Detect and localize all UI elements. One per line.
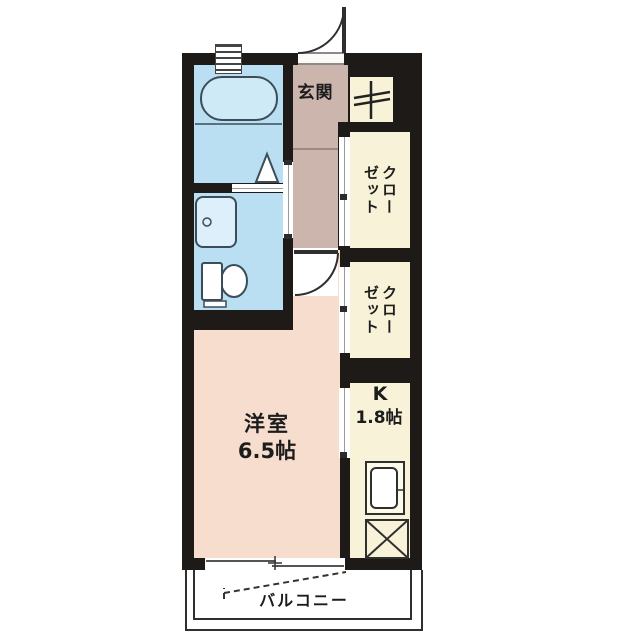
bath-door-opening: [232, 184, 283, 192]
entrance-threshold: [298, 52, 344, 65]
closet-top-door-handle: [340, 194, 347, 200]
entrance-door-swing-icon: [298, 7, 344, 53]
washroom-door-stop-top: [284, 160, 292, 165]
bathroom-window-icon: [215, 44, 242, 74]
western-room-name-label: 洋室: [194, 410, 340, 436]
room-door-opening: [293, 248, 338, 296]
kitchen-size-label: 1.8帖: [342, 404, 416, 426]
closet-top-label-text: クローゼット: [362, 162, 398, 218]
washroom-floor: [194, 193, 283, 310]
utility-meter-box: [350, 77, 393, 122]
floorplan-canvas: 玄関 クローゼット クローゼット K 1.8帖 洋室 6.5帖 バルコニー: [0, 0, 640, 640]
bathtub: [200, 76, 278, 121]
closet-bottom-door-handle: [340, 306, 347, 312]
closet-bottom-label: クローゼット: [350, 262, 410, 358]
closet-bottom-label-text: クローゼット: [362, 282, 398, 338]
washroom-sliding-door: [283, 162, 293, 238]
closet-top-label: クローゼット: [350, 132, 410, 248]
entrance-label: 玄関: [291, 78, 340, 102]
western-room-floor-strip: [293, 250, 340, 558]
balcony-label: バルコニー: [185, 588, 423, 610]
washroom-door-stop-bottom: [284, 234, 292, 239]
kitchen-doorway-stop: [340, 452, 347, 458]
western-room-size-label: 6.5帖: [194, 437, 340, 463]
closet-top-door: [339, 137, 350, 246]
entrance-step-line: [293, 148, 338, 150]
